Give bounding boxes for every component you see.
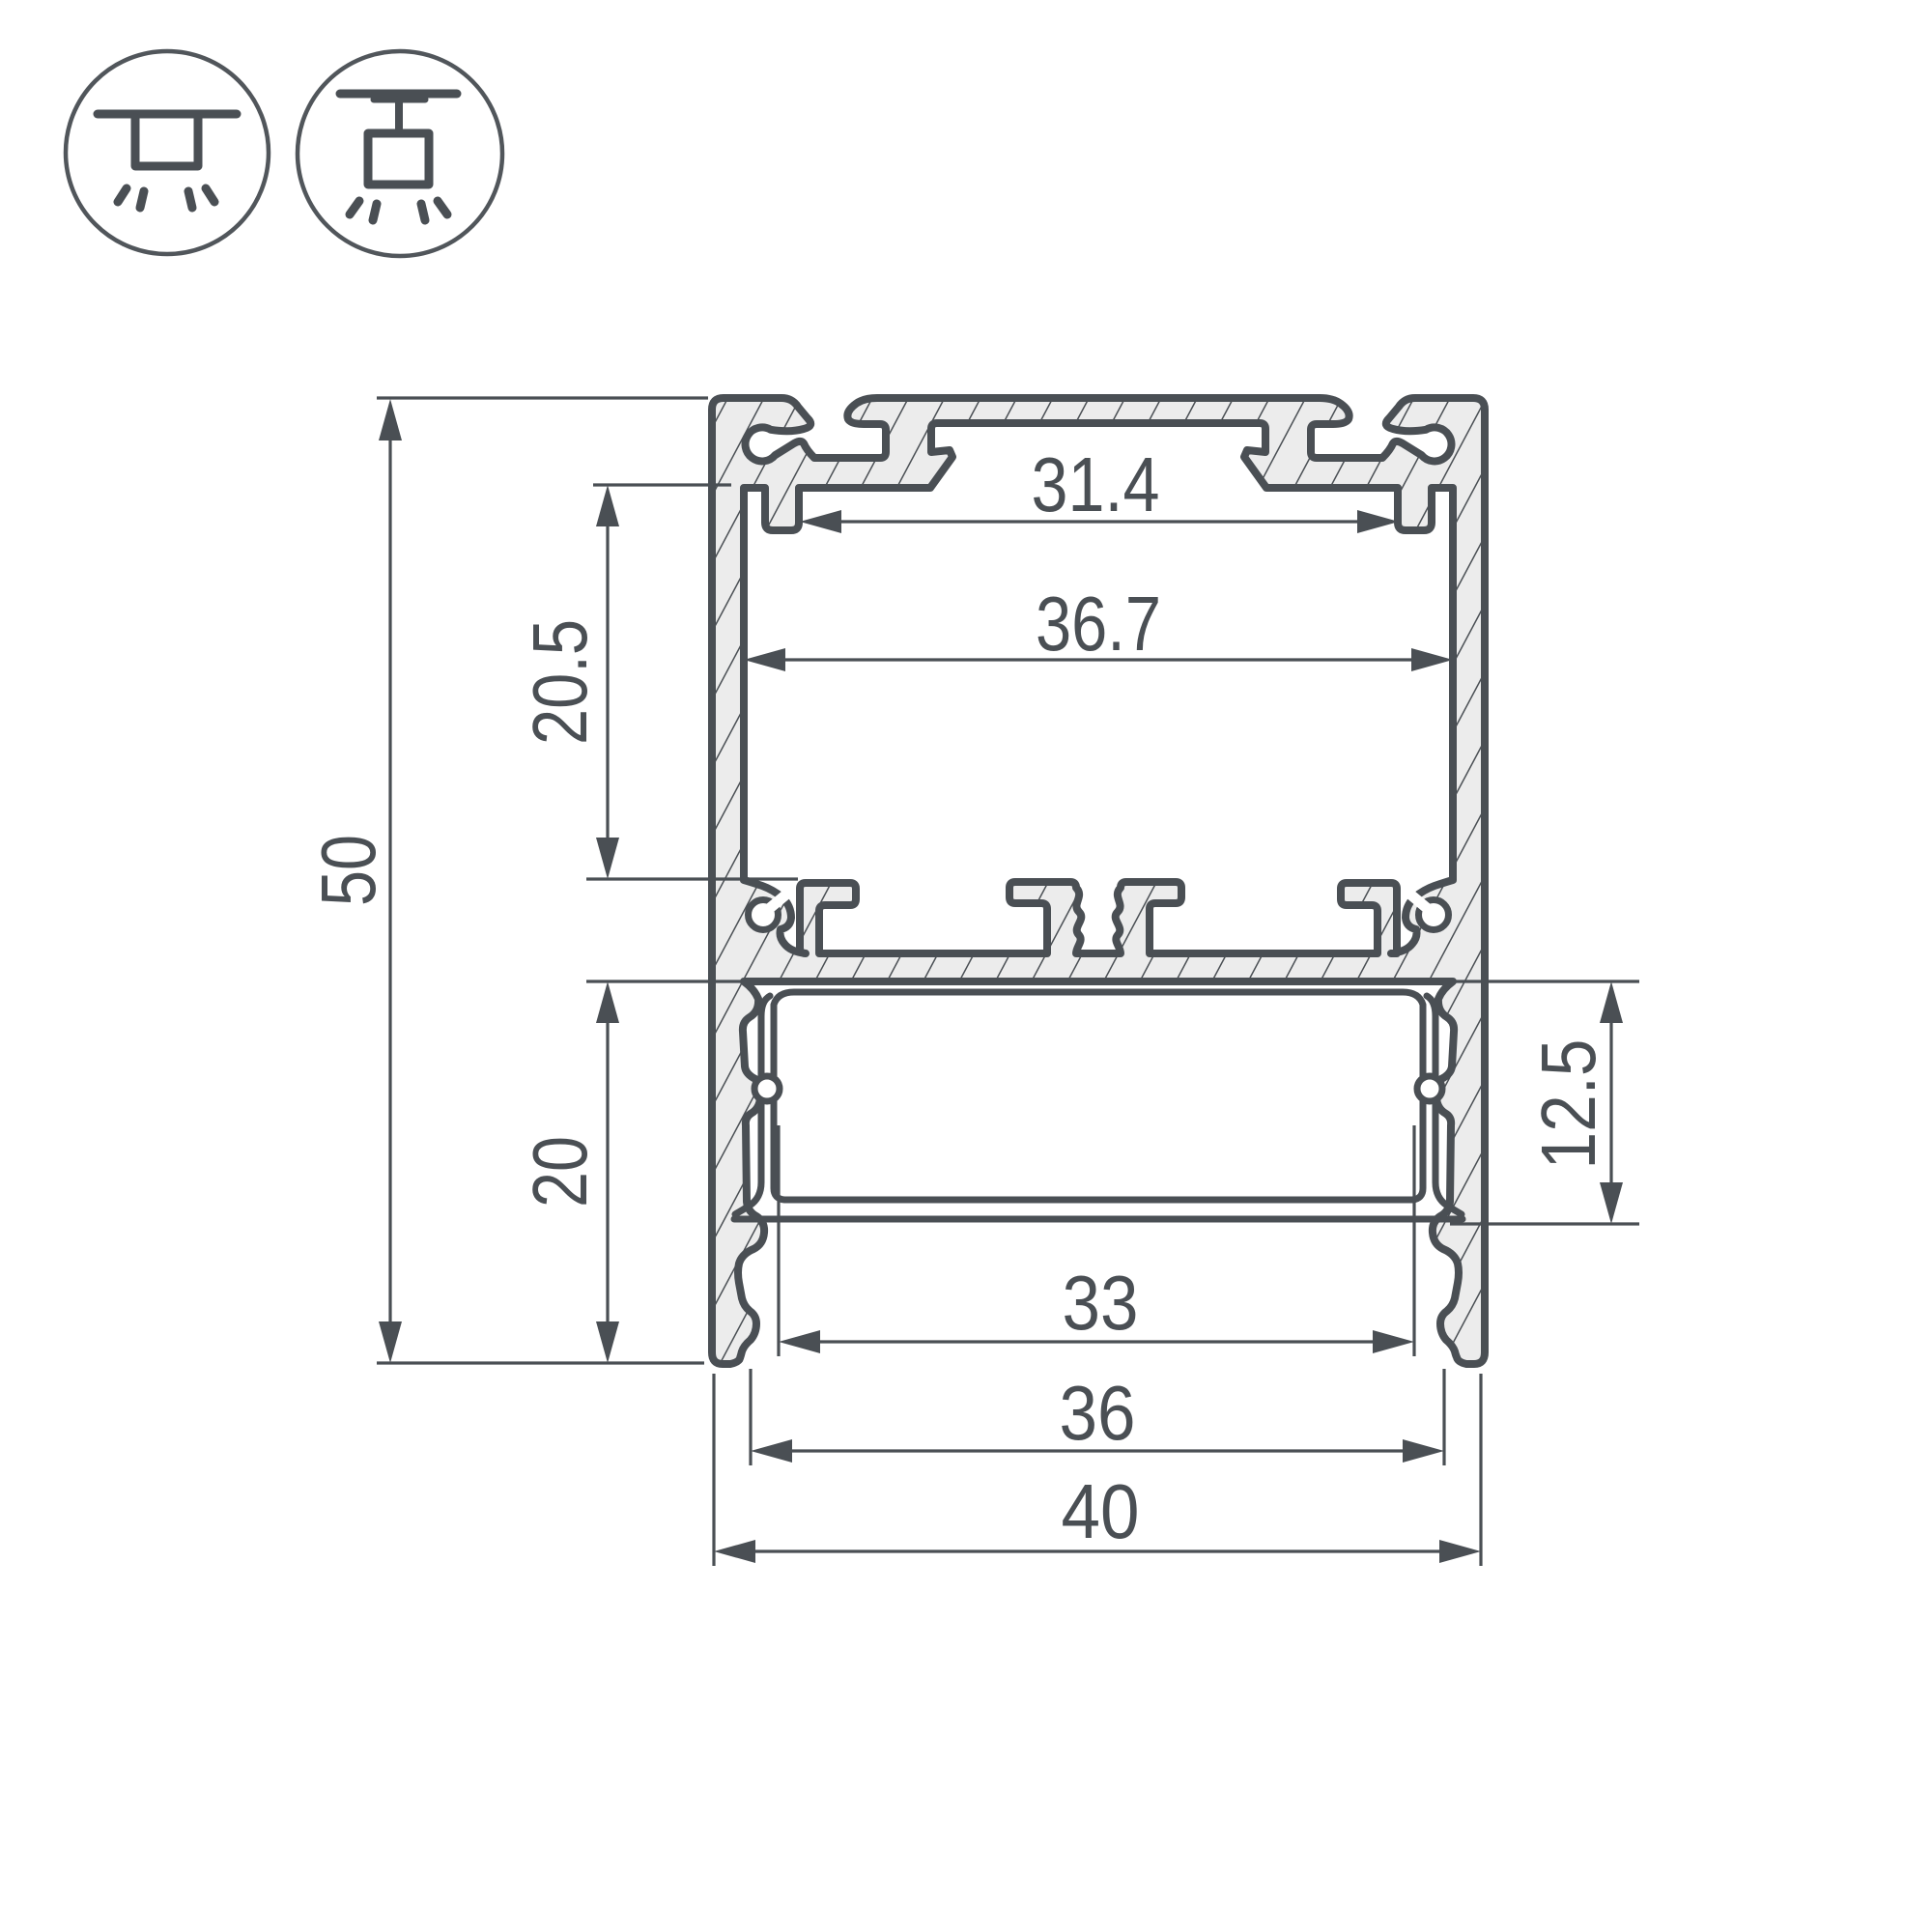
svg-text:40: 40 xyxy=(1062,1468,1140,1554)
svg-text:36: 36 xyxy=(1060,1370,1136,1456)
svg-text:20.5: 20.5 xyxy=(517,619,603,745)
svg-text:33: 33 xyxy=(1063,1260,1139,1346)
svg-text:12.5: 12.5 xyxy=(1525,1039,1611,1170)
svg-text:50: 50 xyxy=(305,835,391,906)
svg-text:36.7: 36.7 xyxy=(1036,581,1161,667)
svg-text:31.4: 31.4 xyxy=(1032,441,1160,527)
svg-text:20: 20 xyxy=(517,1136,603,1207)
